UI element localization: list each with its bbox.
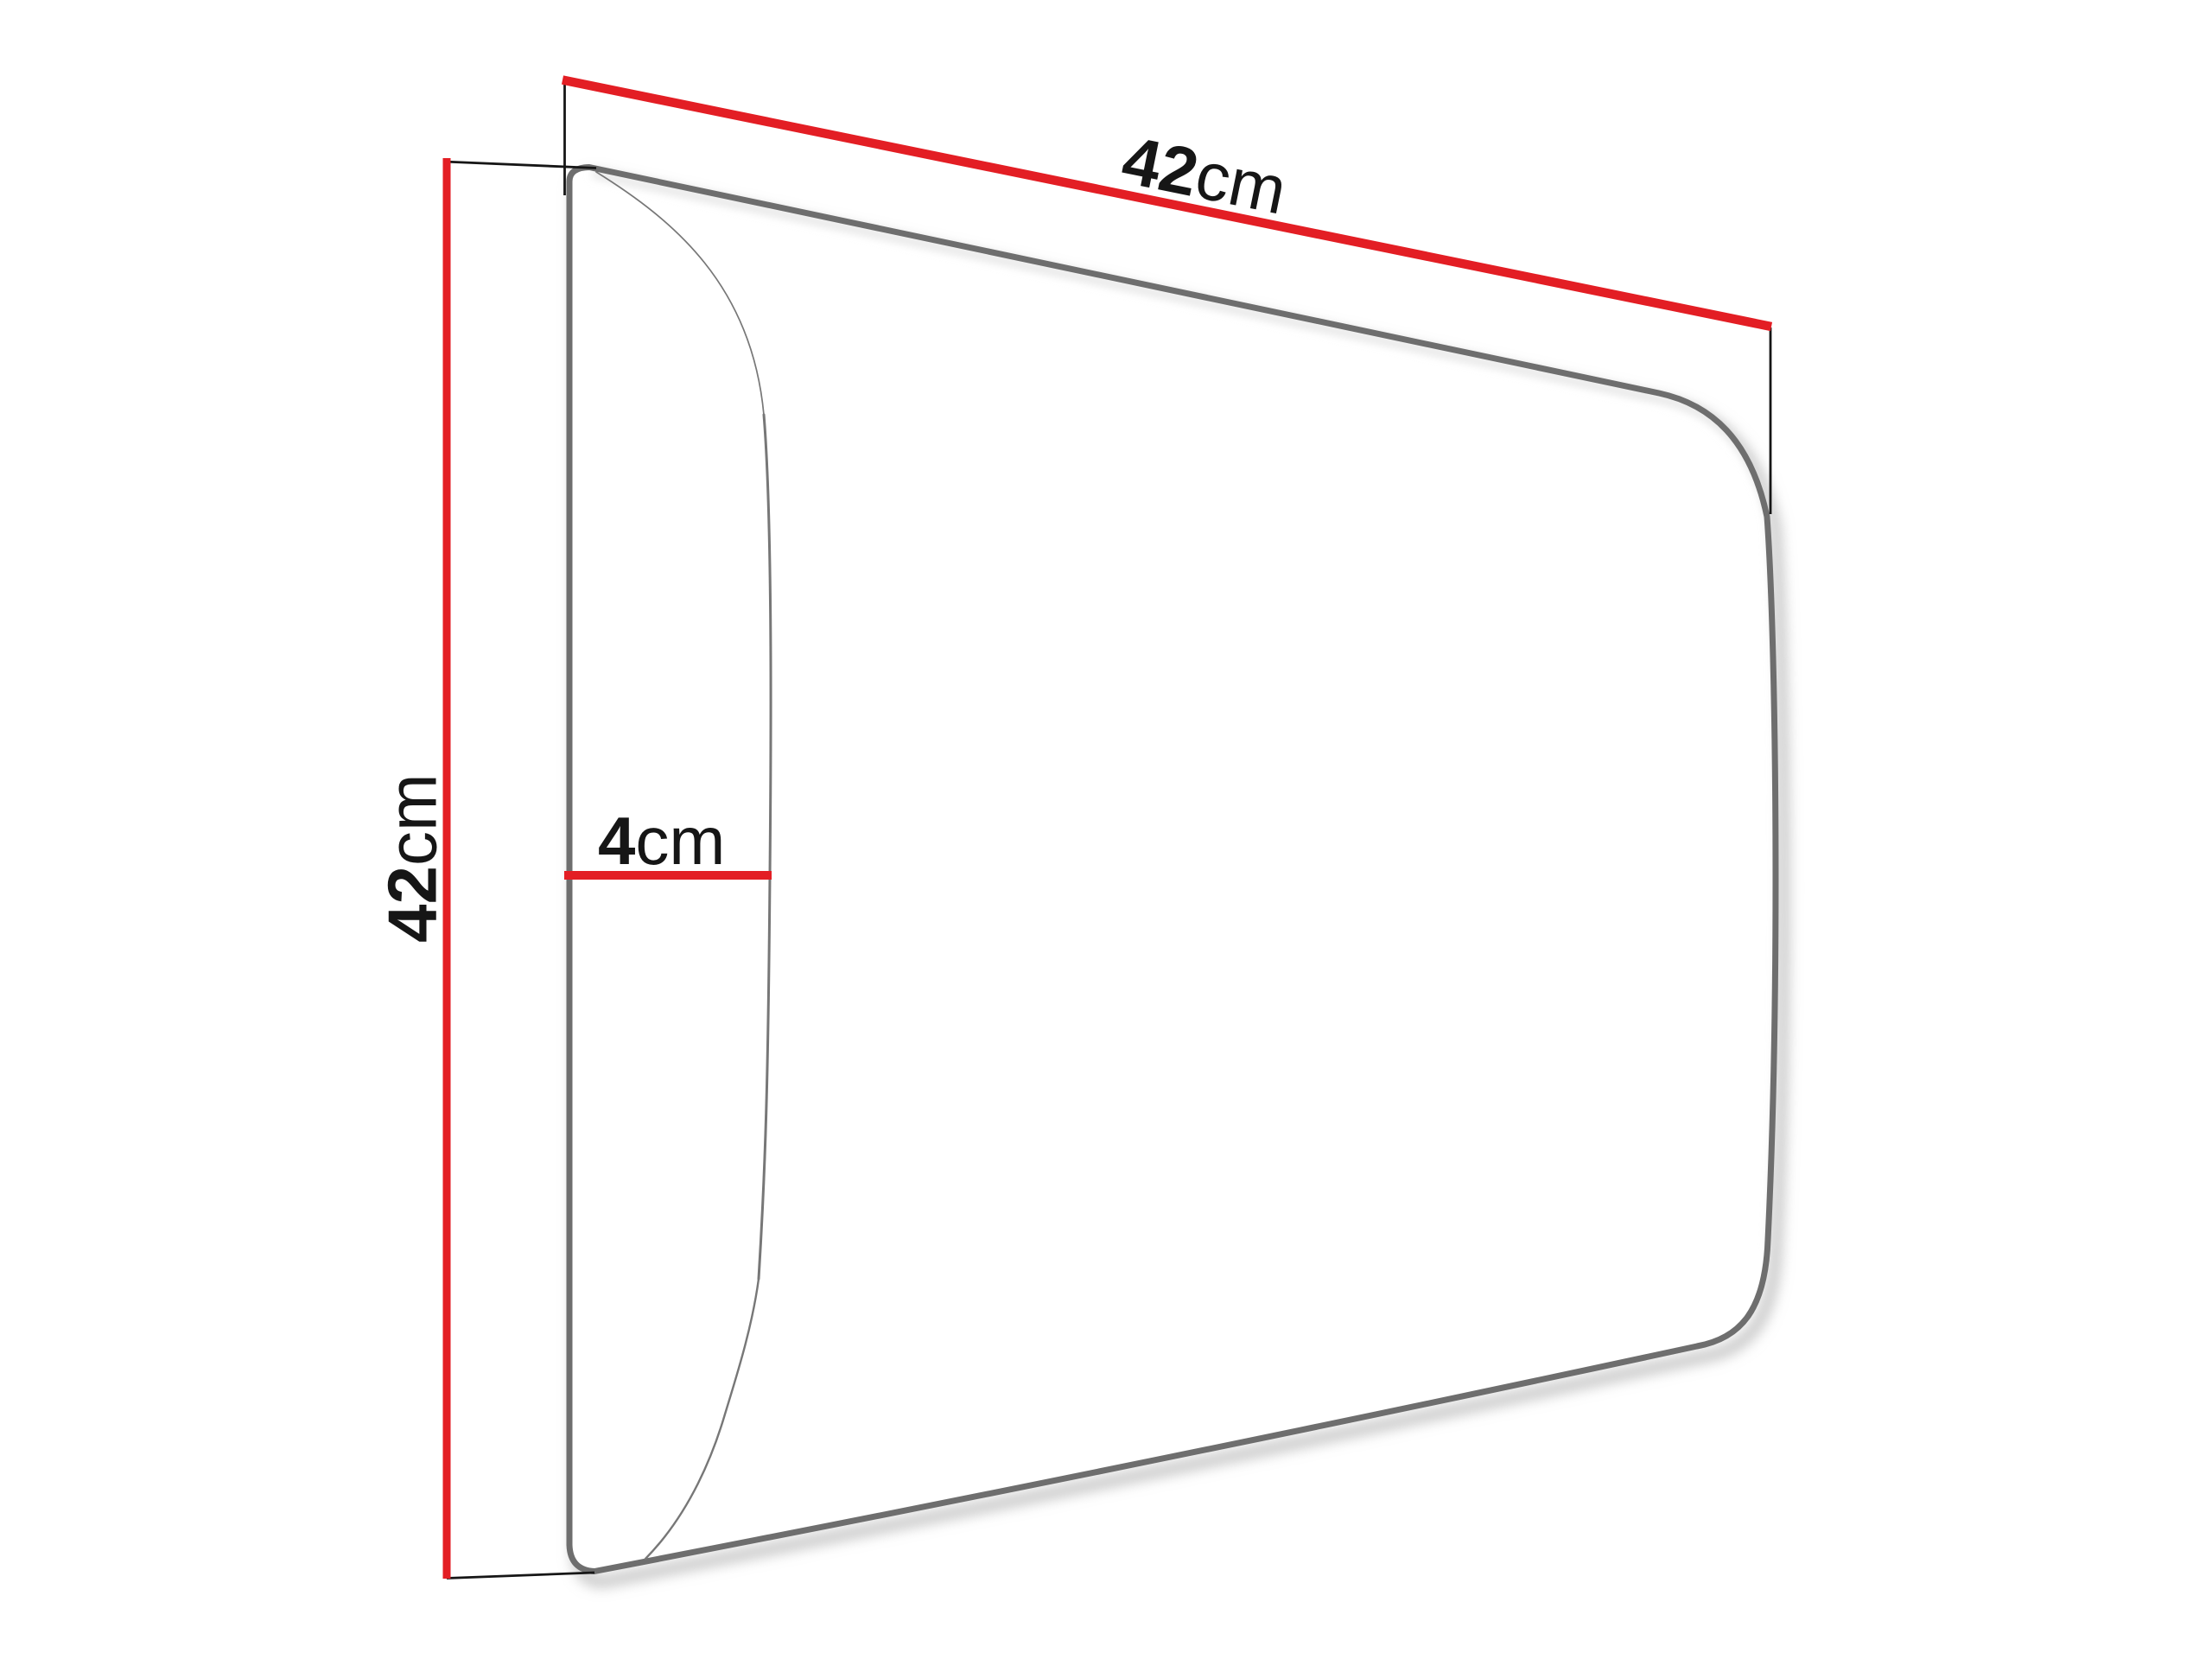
- svg-text:42cm: 42cm: [374, 773, 451, 943]
- svg-text:4cm: 4cm: [598, 803, 725, 879]
